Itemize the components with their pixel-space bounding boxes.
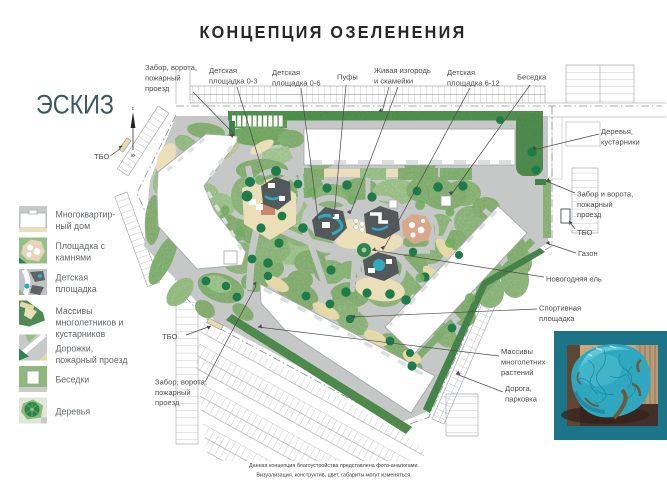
svg-text:площадка 6-12: площадка 6-12: [447, 79, 500, 88]
svg-text:проезд: проезд: [155, 398, 180, 407]
svg-text:растений: растений: [501, 368, 534, 377]
svg-text:Детская: Детская: [56, 273, 89, 283]
svg-text:многолетних: многолетних: [501, 358, 546, 367]
svg-text:ю: ю: [131, 153, 135, 159]
svg-text:Беседки: Беседки: [56, 375, 90, 385]
svg-text:КОНЦЕПЦИЯ ОЗЕЛЕНЕНИЯ: КОНЦЕПЦИЯ ОЗЕЛЕНЕНИЯ: [200, 22, 467, 42]
svg-text:площадка: площадка: [539, 314, 575, 323]
svg-text:ТБО: ТБО: [162, 332, 178, 341]
svg-text:кустарники: кустарники: [601, 138, 640, 147]
svg-text:Массивы: Массивы: [501, 347, 533, 356]
svg-text:и скамейки: и скамейки: [374, 77, 413, 86]
svg-text:Новогодняя ель: Новогодняя ель: [546, 275, 602, 284]
svg-text:площадка: площадка: [56, 284, 97, 294]
svg-text:Деревья: Деревья: [56, 407, 91, 417]
svg-text:пожарный: пожарный: [577, 200, 613, 209]
svg-text:Спортивная: Спортивная: [539, 304, 581, 313]
svg-text:Многоквартир-: Многоквартир-: [56, 210, 116, 220]
svg-text:Данная концепция благоустройст: Данная концепция благоустройства предста…: [249, 462, 419, 469]
svg-text:Массивы: Массивы: [56, 306, 93, 316]
svg-text:проезд: проезд: [577, 210, 602, 219]
svg-text:камнями: камнями: [56, 253, 92, 263]
svg-text:ный дом: ный дом: [56, 221, 91, 231]
svg-text:Забор, ворота,: Забор, ворота,: [155, 378, 207, 387]
svg-text:Газон: Газон: [578, 249, 598, 258]
svg-text:Забор и ворота,: Забор и ворота,: [577, 190, 633, 199]
svg-text:Детская: Детская: [447, 68, 475, 77]
svg-text:проезд: проезд: [145, 84, 170, 93]
svg-text:парковка: парковка: [505, 395, 538, 404]
svg-text:пожарный: пожарный: [145, 74, 181, 83]
svg-text:пожарный проезд: пожарный проезд: [56, 355, 128, 365]
svg-text:Детская: Детская: [272, 68, 300, 77]
svg-text:Дорога,: Дорога,: [505, 384, 532, 393]
svg-text:пожарный: пожарный: [155, 388, 191, 397]
svg-text:Визуализация, конструктив, цве: Визуализация, конструктив, цвет, габарит…: [256, 473, 411, 479]
svg-text:ТБО: ТБО: [94, 152, 110, 161]
svg-text:Беседка: Беседка: [517, 73, 547, 82]
svg-text:Пуфы: Пуфы: [337, 73, 358, 82]
svg-text:площадка 0-6: площадка 0-6: [272, 79, 321, 88]
svg-text:Дорожки,: Дорожки,: [56, 344, 94, 354]
svg-text:кустарников: кустарников: [56, 329, 106, 339]
svg-text:Площадка с: Площадка с: [56, 241, 106, 251]
svg-text:Деревья,: Деревья,: [601, 127, 633, 136]
svg-text:Живая изгородь: Живая изгородь: [374, 66, 431, 75]
svg-text:ТБО: ТБО: [577, 228, 593, 237]
svg-text:ЭСКИЗ: ЭСКИЗ: [36, 90, 114, 120]
svg-text:площадка 0-3: площадка 0-3: [209, 77, 258, 86]
svg-text:многолетников и: многолетников и: [56, 318, 124, 328]
svg-text:Детская: Детская: [209, 66, 237, 75]
svg-text:Забор, ворота,: Забор, ворота,: [145, 63, 197, 72]
